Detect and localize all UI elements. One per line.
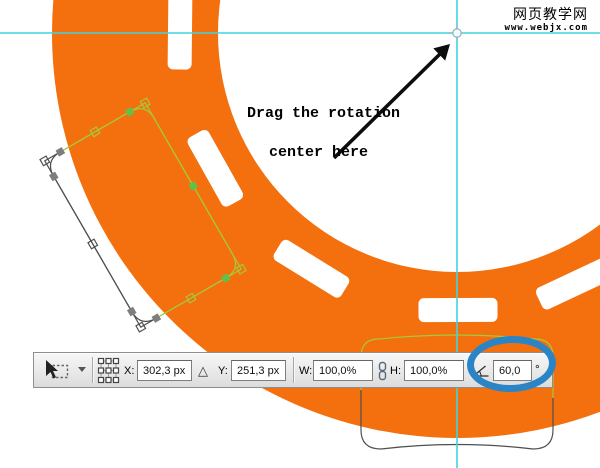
- link-dimensions-icon[interactable]: [377, 361, 388, 381]
- transform-tool-icon[interactable]: [42, 358, 72, 383]
- annotation-text-line2: center here: [269, 144, 368, 161]
- relative-position-delta-icon[interactable]: △: [198, 364, 208, 377]
- x-label: X:: [124, 365, 134, 377]
- lane-dash: [168, 0, 193, 70]
- watermark-site-url: www.webjx.com: [505, 23, 588, 33]
- canvas-artwork: [0, 0, 600, 468]
- w-label: W:: [299, 365, 312, 377]
- anchor-unselected[interactable]: [152, 313, 162, 323]
- anchor-unselected[interactable]: [49, 172, 59, 182]
- h-label: H:: [390, 365, 401, 377]
- tool-dropdown-arrow-icon[interactable]: [78, 367, 86, 372]
- separator: [293, 357, 294, 383]
- watermark-site-name: 网页教学网: [513, 4, 588, 24]
- y-label: Y:: [218, 365, 228, 377]
- lane-dash: [418, 298, 497, 322]
- w-input[interactable]: [313, 360, 373, 381]
- photoshop-canvas: Drag the rotation center here 网页教学网 www.…: [0, 0, 600, 468]
- h-input[interactable]: [404, 360, 464, 381]
- y-input[interactable]: [231, 360, 286, 381]
- x-input[interactable]: [137, 360, 192, 381]
- anchor-unselected[interactable]: [127, 307, 137, 317]
- annotation-text-line1: Drag the rotation: [247, 105, 400, 122]
- arrow-cursor-icon: [46, 360, 58, 379]
- separator: [92, 357, 93, 383]
- reference-point-locator-icon[interactable]: [97, 357, 120, 385]
- anchor-unselected[interactable]: [56, 147, 66, 157]
